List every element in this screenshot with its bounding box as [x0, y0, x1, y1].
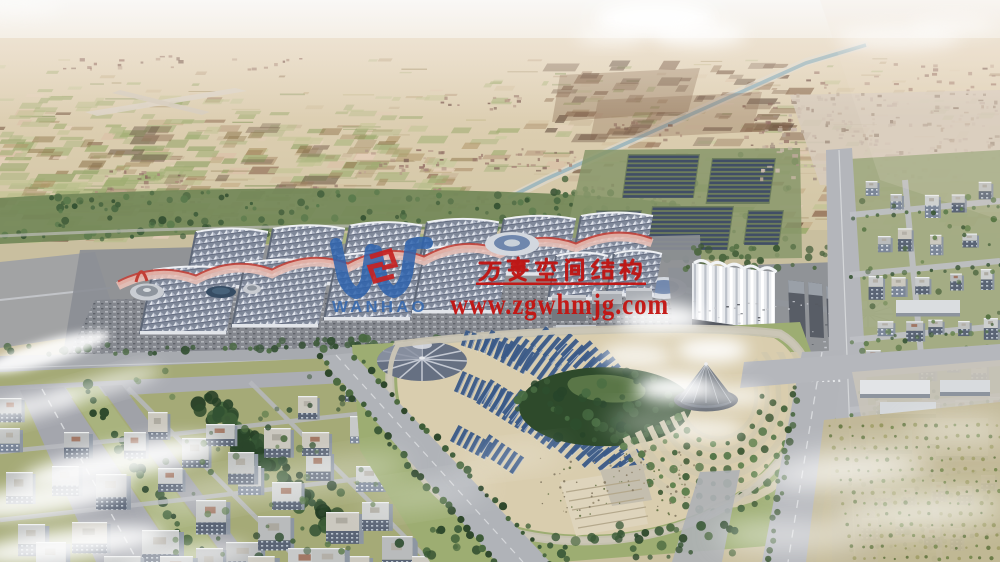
- svg-text:www.zgwhmjg.com: www.zgwhmjg.com: [450, 288, 669, 321]
- svg-text:WANHAO: WANHAO: [332, 299, 428, 316]
